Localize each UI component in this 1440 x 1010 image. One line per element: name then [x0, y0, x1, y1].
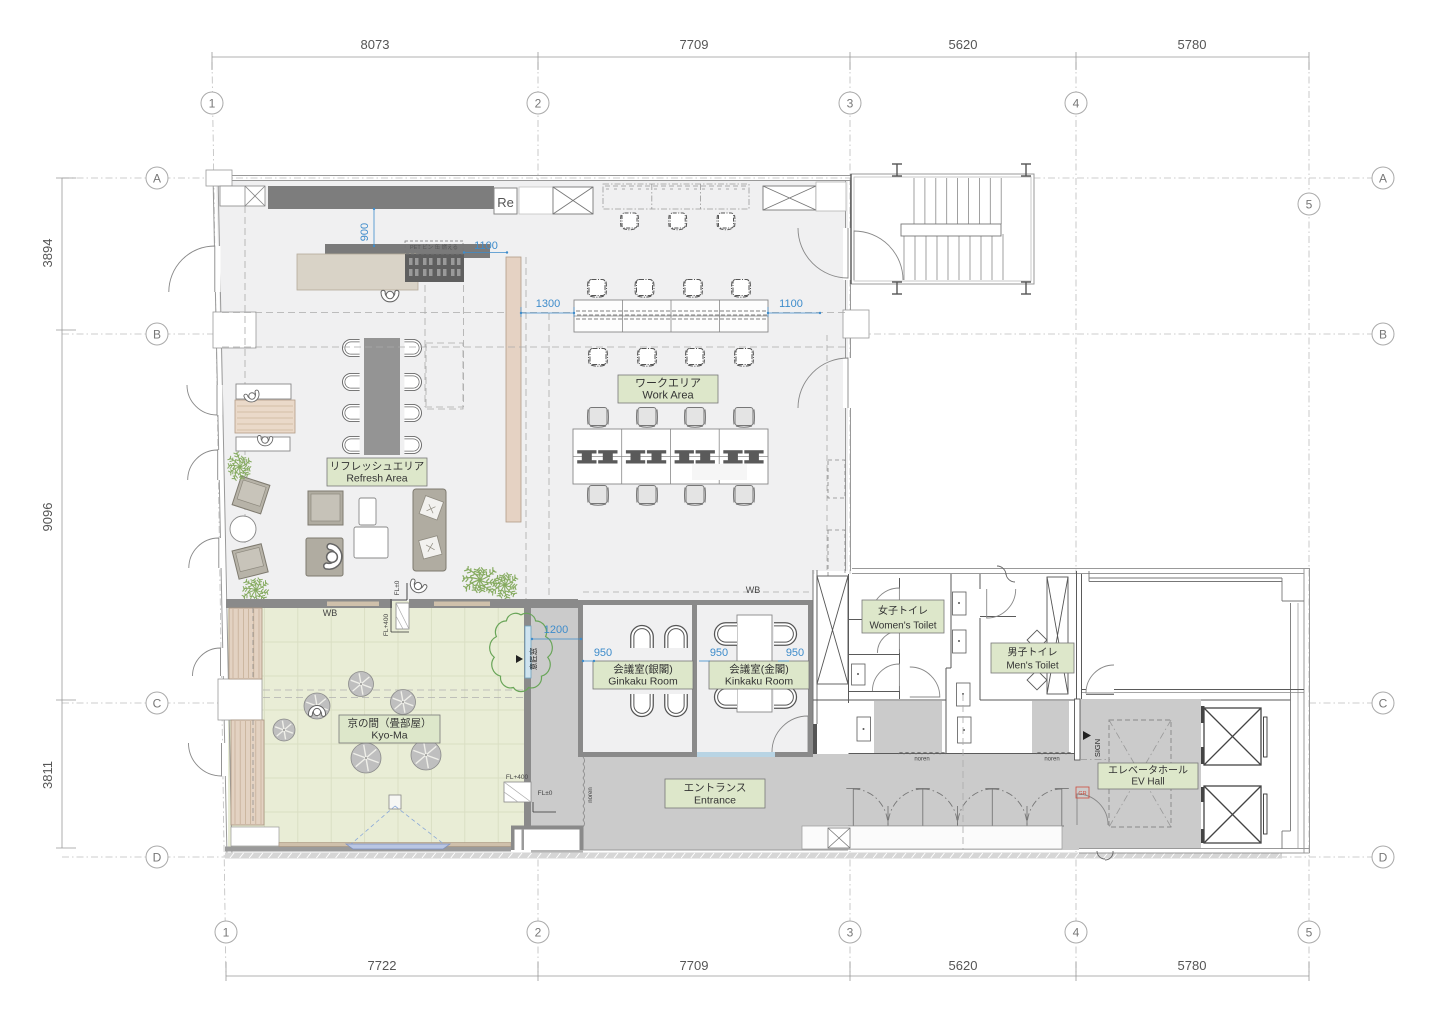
svg-text:5620: 5620	[949, 958, 978, 973]
svg-text:Work Area: Work Area	[642, 390, 694, 402]
svg-text:Men's Toilet: Men's Toilet	[1006, 661, 1059, 672]
svg-text:B: B	[153, 328, 161, 342]
svg-text:7722: 7722	[368, 958, 397, 973]
svg-text:FL+400: FL+400	[383, 614, 390, 637]
svg-text:FL+400: FL+400	[506, 774, 529, 781]
svg-text:1: 1	[209, 97, 216, 111]
svg-text:5780: 5780	[1178, 37, 1207, 52]
svg-text:WB: WB	[746, 585, 761, 595]
svg-text:2: 2	[535, 97, 542, 111]
svg-text:7709: 7709	[680, 37, 709, 52]
svg-text:D: D	[153, 851, 162, 865]
svg-text:リフレッシュエリア: リフレッシュエリア	[330, 461, 425, 473]
svg-text:5: 5	[1306, 198, 1313, 212]
svg-text:1200: 1200	[544, 624, 568, 636]
svg-text:Re: Re	[497, 195, 514, 210]
svg-text:950: 950	[594, 647, 612, 659]
svg-text:noren: noren	[588, 787, 594, 802]
svg-text:Kyo-Ma: Kyo-Ma	[371, 730, 407, 742]
svg-text:3811: 3811	[40, 761, 55, 789]
svg-text:Ginkaku Room: Ginkaku Room	[608, 676, 678, 688]
svg-text:noren: noren	[914, 757, 929, 763]
svg-text:PET ビン 缶 燃える: PET ビン 缶 燃える	[410, 243, 458, 251]
svg-text:1300: 1300	[536, 298, 560, 310]
svg-text:Entrance: Entrance	[694, 795, 736, 807]
svg-text:C: C	[1379, 697, 1388, 711]
svg-text:会議室(金閣): 会議室(金閣)	[729, 663, 789, 676]
svg-text:1100: 1100	[779, 298, 803, 310]
svg-text:女子トイレ: 女子トイレ	[878, 604, 928, 617]
svg-text:FL±0: FL±0	[538, 790, 553, 797]
svg-text:Kinkaku Room: Kinkaku Room	[725, 676, 794, 688]
svg-text:Refresh Area: Refresh Area	[346, 473, 407, 485]
svg-text:3: 3	[847, 926, 854, 940]
svg-text:5780: 5780	[1178, 958, 1207, 973]
svg-text:4: 4	[1073, 97, 1080, 111]
svg-text:5: 5	[1306, 926, 1313, 940]
svg-text:D: D	[1379, 851, 1388, 865]
svg-text:2: 2	[535, 926, 542, 940]
svg-text:B: B	[1379, 328, 1387, 342]
svg-text:1: 1	[223, 926, 230, 940]
svg-text:男子トイレ: 男子トイレ	[1008, 647, 1058, 659]
svg-text:SIGN: SIGN	[1093, 739, 1102, 757]
svg-text:EV Hall: EV Hall	[1131, 777, 1164, 788]
svg-text:京の間（畳部屋）: 京の間（畳部屋）	[348, 717, 432, 730]
svg-text:1100: 1100	[474, 240, 498, 252]
svg-text:Women's Toilet: Women's Toilet	[869, 621, 936, 632]
svg-text:8073: 8073	[361, 37, 390, 52]
svg-text:ワークエリア: ワークエリア	[635, 377, 701, 390]
svg-text:4: 4	[1073, 926, 1080, 940]
svg-text:GR: GR	[1078, 791, 1086, 797]
svg-text:C: C	[153, 697, 162, 711]
svg-text:9096: 9096	[40, 503, 55, 532]
svg-text:エレベータホール: エレベータホール	[1108, 765, 1188, 777]
svg-text:A: A	[1379, 172, 1387, 186]
svg-text:950: 950	[710, 647, 728, 659]
svg-text:noren: noren	[1044, 757, 1059, 763]
svg-text:A: A	[153, 172, 161, 186]
svg-text:WB: WB	[323, 608, 338, 618]
svg-text:5620: 5620	[949, 37, 978, 52]
svg-text:3: 3	[847, 97, 854, 111]
svg-text:3894: 3894	[40, 239, 55, 268]
svg-text:会議室(銀閣): 会議室(銀閣)	[613, 663, 673, 676]
svg-text:FL±0: FL±0	[394, 580, 401, 595]
svg-text:950: 950	[786, 647, 804, 659]
svg-text:7709: 7709	[680, 958, 709, 973]
svg-text:900: 900	[359, 223, 371, 241]
svg-text:意匠窓: 意匠窓	[528, 647, 538, 670]
svg-text:エントランス: エントランス	[684, 782, 747, 794]
